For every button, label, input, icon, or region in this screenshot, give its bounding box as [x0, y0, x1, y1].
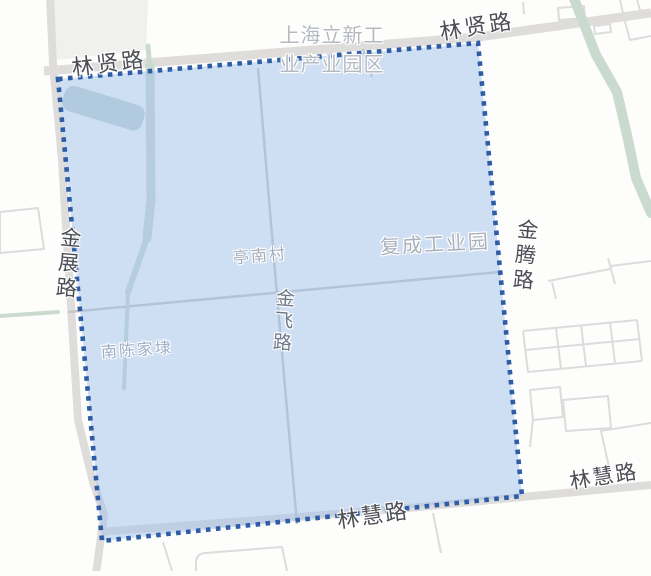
map-canvas[interactable]: 林贤路 林贤路 上海立新工 业产业园区 金展路 金腾路 金飞路 亭南村 复成工业… [0, 0, 651, 571]
selection-area[interactable] [58, 43, 522, 541]
map-graphics [0, 0, 651, 571]
land-patch [53, 0, 148, 60]
